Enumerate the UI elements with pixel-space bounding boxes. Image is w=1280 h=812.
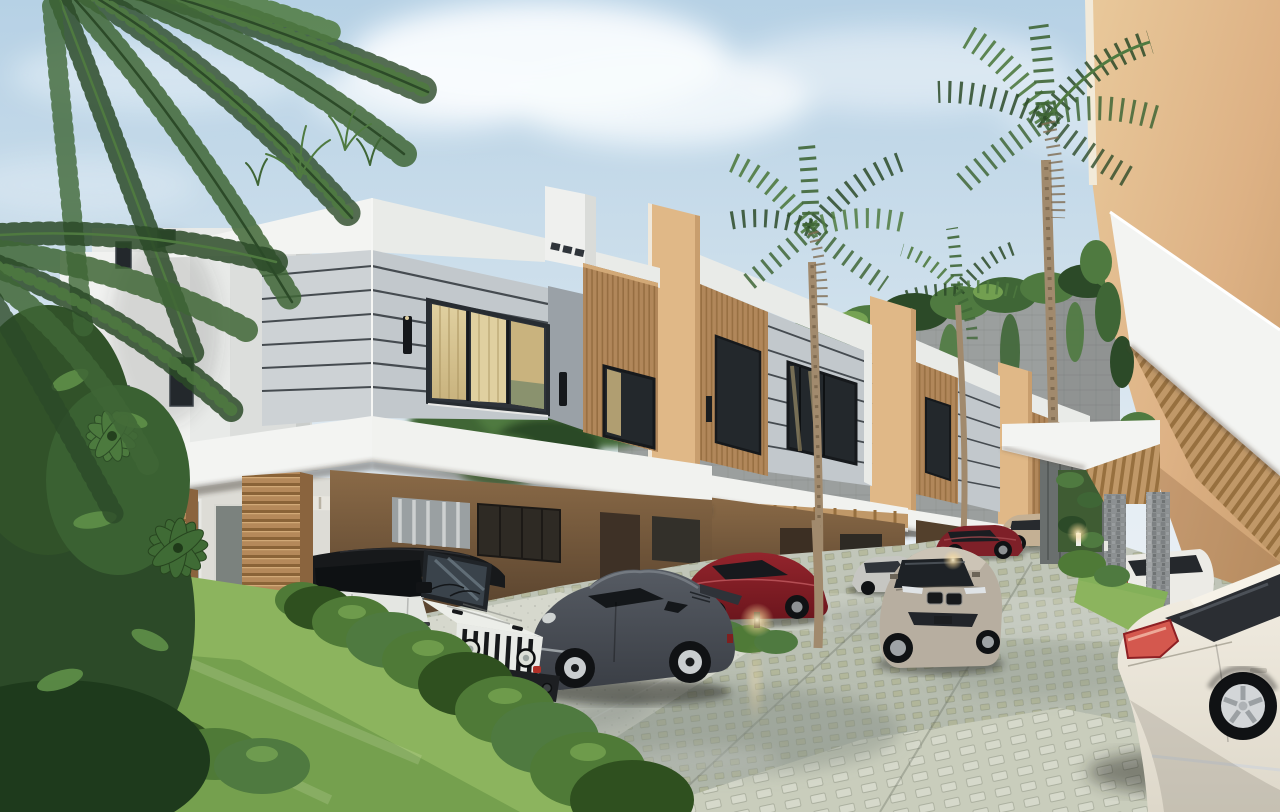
mirror <box>416 582 432 593</box>
palm-trunk <box>816 520 819 648</box>
bollard-light-glow <box>943 550 963 570</box>
wall-sconce-icon <box>706 396 712 422</box>
rear-wheel <box>1209 668 1277 740</box>
bollard-light-glow <box>740 603 774 637</box>
path-light-glow <box>1067 522 1089 544</box>
concrete-panel <box>548 286 583 430</box>
architectural-rendering <box>0 0 1280 812</box>
